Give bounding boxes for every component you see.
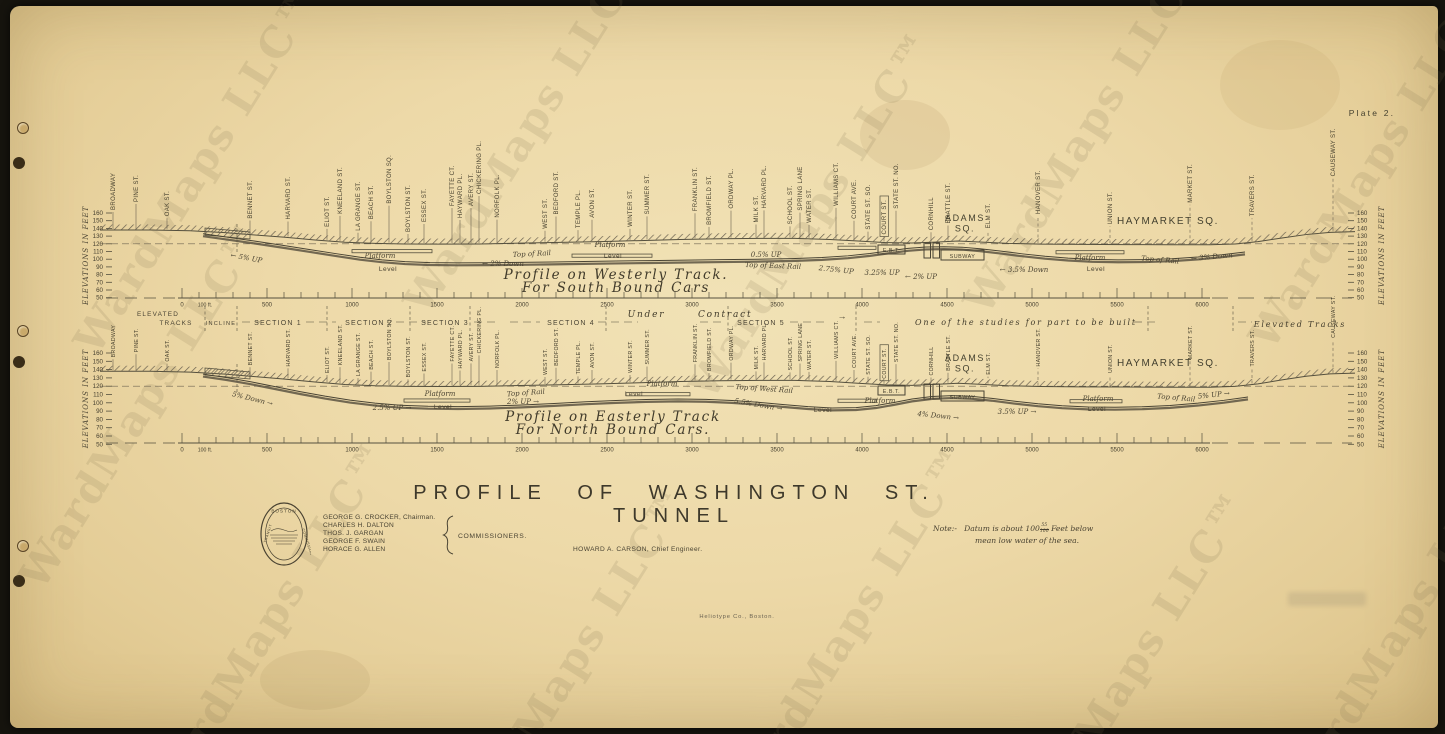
elev-tick-label: 110 [93, 392, 103, 399]
street-label: NORFOLK PL. [495, 330, 501, 368]
street-label: ESSEX ST. [422, 342, 428, 371]
elev-axis-label: ELEVATIONS IN FEET [82, 349, 90, 450]
profile-annotation: Top of Rail [1141, 254, 1180, 265]
elev-axis-label: ELEVATIONS IN FEET [1378, 349, 1386, 450]
structure-box-label: E.B.T. [883, 389, 900, 395]
elev-tick-label: 90 [1357, 264, 1364, 271]
street-label: CHICKERING PL. [477, 141, 483, 194]
elev-tick-label: 160 [93, 210, 104, 217]
study-note: One of the studies for part to be built [915, 318, 1137, 327]
street-label: HARVARD PL. [762, 322, 768, 360]
profile-annotation: Platform [424, 390, 456, 398]
chief-engineer: HOWARD A. CARSON, Chief Engineer. [573, 546, 702, 553]
elev-tick-label: 130 [1357, 375, 1368, 382]
street-label: ELM ST. [986, 203, 992, 228]
street-label: ESSEX ST. [422, 189, 428, 223]
street-label: COURT ST. [882, 200, 888, 235]
street-label: LA GRANGE ST. [356, 181, 362, 231]
street-label: CHICKERING PL. [477, 307, 483, 354]
elev-tick-label: 50 [1357, 295, 1364, 302]
street-label: BOYLSTON SQ. [387, 155, 393, 204]
ruler-number: 2000 [515, 448, 529, 454]
section-label: SECTION 5 [737, 320, 785, 327]
elev-tick-label: 60 [1357, 287, 1364, 294]
street-label: COURT ST. [882, 348, 888, 378]
elev-tick-label: 100 [93, 256, 104, 263]
square-label: HAYMARKET SQ. [1117, 358, 1219, 369]
ruler-number: 3000 [685, 303, 699, 309]
commissioner-name: THOS. J. GARGAN [323, 530, 458, 538]
profile-annotation: 2% UP → [506, 398, 539, 406]
elev-tick-label: 150 [93, 358, 104, 365]
street-label: CORNHILL [929, 346, 935, 375]
elev-tick-label: 160 [93, 350, 104, 357]
profile-caption: For North Bound Cars. [515, 422, 711, 438]
street-label: CORNHILL [929, 197, 935, 230]
profile-annotation: ← 3.5% Down [1000, 266, 1049, 274]
section-label: SECTION 4 [547, 320, 595, 327]
commissioner-name: GEORGE F. SWAIN [323, 538, 458, 546]
street-label: BENNET ST. [248, 332, 254, 365]
profile-annotation: Top of West Rail [735, 383, 793, 395]
profile-annotation: ← 3% Down [1191, 251, 1234, 263]
street-label: WATER ST. [807, 188, 813, 222]
profile-annotation: Top of Rail [507, 388, 546, 399]
street-label: FAYETTE CT. [450, 165, 456, 206]
profile-annotation: Top of Rail [513, 249, 552, 259]
profile-annotation: ← 5% UP [230, 251, 263, 264]
street-label: STATE ST. SO. [866, 335, 872, 375]
profile-annotation: Top of Rail [1157, 392, 1196, 403]
ruler-number: 5000 [1025, 448, 1039, 454]
street-label: SCHOOL ST. [788, 185, 794, 224]
ruler-number: 500 [262, 303, 273, 309]
street-label: OAK ST. [165, 191, 171, 216]
elevated-tracks-right: Elevated Tracks [1253, 320, 1346, 329]
note-body: Feet below [1051, 524, 1093, 533]
elev-tick-label: 120 [93, 383, 104, 390]
street-label: ORDWAY PL. [729, 325, 735, 360]
street-label: STATE ST. NO. [894, 322, 900, 362]
ruler-number: 6000 [1195, 448, 1209, 454]
elev-tick-label: 50 [96, 295, 103, 302]
profile-annotation: ← 2% UP [905, 273, 937, 281]
ruler-number: 0 [180, 303, 184, 309]
elev-tick-label: 140 [93, 367, 104, 374]
street-label: MILK ST. [754, 346, 760, 370]
profile-annotation: Top of East Rail [745, 261, 801, 271]
commissioner-name: HORACE G. ALLEN [323, 546, 458, 554]
street-label: SPRING LANE [798, 323, 804, 362]
elev-tick-label: 80 [1357, 416, 1364, 423]
ruler-number: 4500 [940, 448, 954, 454]
street-label: AVON ST. [590, 342, 596, 368]
street-label: COURT AVE. [852, 334, 858, 368]
ruler-number: 3500 [770, 303, 784, 309]
elev-tick-label: 160 [1357, 350, 1368, 357]
ruler-number: 5500 [1110, 303, 1124, 309]
profile-annotation: Level [604, 253, 622, 260]
street-label: BEDFORD ST. [554, 171, 560, 215]
street-label: CAUSEWAY ST. [1331, 128, 1337, 176]
elev-tick-label: 150 [93, 218, 104, 225]
seal-text-transit: TRANSIT [263, 523, 273, 543]
elev-tick-label: 90 [96, 408, 103, 415]
elev-tick-label: 150 [1357, 358, 1368, 365]
elev-tick-label: 110 [1357, 249, 1367, 256]
street-label: STATE ST. NO. [894, 163, 900, 209]
street-label: TEMPLE PL. [576, 190, 582, 228]
elev-tick-label: 90 [96, 264, 103, 271]
elev-tick-label: 120 [1357, 383, 1368, 390]
ruler-number: 4000 [855, 448, 869, 454]
ruler-number: 3500 [770, 448, 784, 454]
section-label: SECTION 1 [254, 320, 302, 327]
street-label: ELIOT ST. [325, 346, 331, 373]
street-label: ORDWAY PL. [729, 168, 735, 208]
street-label: HANOVER ST. [1036, 328, 1042, 366]
profile-annotation: 5% Down → [231, 390, 274, 408]
street-label: UNION ST. [1108, 192, 1114, 225]
street-label: MILK ST. [754, 195, 760, 222]
faded-stamp [1288, 592, 1366, 606]
elev-tick-label: 130 [93, 233, 104, 240]
profile-annotation: Level [814, 407, 832, 414]
street-label: AVON ST. [590, 188, 596, 218]
street-label: BENNET ST. [248, 180, 254, 218]
note-line2: mean low water of the sea. [975, 535, 1163, 547]
street-label: PINE ST. [134, 328, 140, 352]
street-label: STATE ST. SO. [866, 184, 872, 229]
elev-tick-label: 70 [1357, 279, 1364, 286]
square-label: ADAMS [945, 213, 985, 223]
street-label: SUMMER ST. [645, 329, 651, 365]
square-label: SQ. [955, 224, 975, 234]
elev-tick-label: 140 [1357, 367, 1368, 374]
elev-tick-label: 100 [1357, 400, 1368, 407]
ruler-number: 100 ft. [198, 448, 212, 454]
street-label: COURT AVE. [852, 180, 858, 219]
platform-outline [838, 246, 876, 249]
street-label: PINE ST. [134, 175, 140, 202]
ruler-number: 1500 [430, 303, 444, 309]
elev-tick-label: 100 [93, 400, 104, 407]
street-label: HARVARD ST. [286, 329, 292, 367]
elev-tick-label: 80 [96, 272, 103, 279]
section-label: SECTION 2 [345, 320, 393, 327]
commissioners-label: COMMISSIONERS. [458, 533, 527, 540]
elev-tick-label: 70 [96, 425, 103, 432]
profile-drawing: E.B.T.SUBWAYBROADWAYPINE ST.OAK ST.BENNE… [0, 0, 1445, 734]
elev-axis-label: ELEVATIONS IN FEET [82, 205, 90, 306]
street-label: UNION ST. [1108, 344, 1114, 373]
ruler-number: 6000 [1195, 303, 1209, 309]
profile-annotation: Level [1087, 266, 1105, 273]
platform-outline [404, 399, 470, 402]
profile-annotation: Level [1088, 406, 1106, 413]
structure-box-label: SUBWAY [950, 254, 976, 260]
street-label: TEMPLE PL. [576, 341, 582, 374]
elev-tick-label: 60 [96, 433, 103, 440]
street-label: HARVARD PL. [762, 165, 768, 208]
street-label: KNEELAND ST. [338, 167, 344, 214]
street-label: SPRING LANE [798, 166, 804, 210]
profile-annotation: 2.75% UP [817, 264, 854, 276]
ruler-number: 1500 [430, 448, 444, 454]
street-label: BROMFIELD ST. [707, 175, 713, 225]
profile-annotation: 5% UP → [1197, 389, 1230, 400]
profile-annotation: Platform [864, 397, 896, 405]
street-label: ELIOT ST. [325, 196, 331, 227]
incline-label: INCLINE [206, 321, 236, 327]
elev-axis-label: ELEVATIONS IN FEET [1378, 205, 1386, 306]
street-label: FAYETTE CT. [450, 326, 456, 362]
street-label: ELM ST. [986, 353, 992, 375]
street-label: BOYLSTON ST. [406, 185, 412, 232]
elev-tick-label: 100 [1357, 256, 1368, 263]
structure-box-label: SUBWAY [950, 395, 976, 401]
commissioner-name: GEORGE G. CROCKER, Chairman. [323, 514, 458, 522]
street-label: CAUSEWAY ST. [1331, 296, 1337, 338]
street-label: LA GRANGE ST. [356, 333, 362, 376]
street-label: KNEELAND ST. [338, 324, 344, 365]
street-label: WEST ST. [543, 348, 549, 375]
street-label: WINTER ST. [628, 340, 634, 373]
elev-tick-label: 110 [93, 249, 103, 256]
elev-tick-label: 110 [1357, 392, 1367, 399]
profile-annotation: Platform [646, 380, 678, 388]
street-label: WEST ST. [543, 198, 549, 228]
elev-tick-label: 120 [1357, 241, 1368, 248]
elevated-tracks-left: ELEVATED [137, 311, 179, 318]
structure-box-label: E.B.T. [883, 248, 900, 254]
street-label: NORFOLK PL. [495, 174, 501, 218]
ruler-number: 1000 [345, 448, 359, 454]
elev-tick-label: 80 [1357, 272, 1364, 279]
street-label: BROMFIELD ST. [707, 327, 713, 371]
btc-seal: BOSTON TRANSIT COMMISSION [257, 499, 311, 569]
plate-label: Plate 2. [1322, 108, 1422, 118]
street-label: BROADWAY [111, 173, 117, 210]
street-label: HAYWARD PL. [458, 329, 464, 368]
note-body: Datum is about 100 [964, 524, 1040, 533]
profile-annotation: Platform [1082, 395, 1114, 403]
street-label: SUMMER ST. [645, 174, 651, 215]
section-label: SECTION 3 [421, 320, 469, 327]
elevated-tracks-left: TRACKS [159, 320, 192, 327]
street-label: TRAVERS ST. [1250, 330, 1256, 367]
elev-tick-label: 70 [1357, 425, 1364, 432]
seal-scene [271, 529, 297, 532]
ruler-number: 5500 [1110, 448, 1124, 454]
elev-tick-label: 60 [1357, 433, 1364, 440]
profile-annotation: Platform [1074, 254, 1106, 262]
square-label: ADAMS [945, 353, 985, 363]
street-label: AVERY ST. [469, 332, 475, 361]
street-label: FRANKLIN ST. [693, 167, 699, 211]
profile-annotation: 4% Down → [916, 410, 959, 422]
street-label: WINTER ST. [628, 189, 634, 227]
street-label: BEACH ST. [369, 185, 375, 219]
profile-annotation: Platform [364, 252, 396, 260]
elev-tick-label: 50 [96, 441, 103, 448]
street-label: HARVARD ST. [286, 177, 292, 220]
elev-tick-label: 70 [96, 279, 103, 286]
street-label: BEACH ST. [369, 340, 375, 370]
street-label: WATER ST. [807, 340, 813, 370]
profile-annotation: Level [434, 404, 452, 411]
elev-tick-label: 60 [96, 287, 103, 294]
elev-tick-label: 80 [96, 416, 103, 423]
street-label: WILLIAMS CT. [834, 162, 840, 206]
street-label: BOYLSTON ST. [406, 336, 412, 377]
direction-arrow: → [838, 311, 847, 321]
elev-tick-label: 50 [1357, 441, 1364, 448]
profile-caption: For South Bound Cars [521, 280, 710, 296]
scanned-map-sheet: WardMaps LLC™WardMaps LLC™WardMaps LLC™W… [0, 0, 1445, 734]
under-contract-label: Under Contract [628, 310, 753, 320]
elev-tick-label: 130 [1357, 233, 1368, 240]
elev-tick-label: 150 [1357, 218, 1368, 225]
street-label: HAYWARD PL. [458, 173, 464, 218]
elev-tick-label: 120 [93, 241, 104, 248]
ruler-number: 1000 [345, 303, 359, 309]
ruler-number: 2000 [515, 303, 529, 309]
profile-annotation: 3.5% UP → [998, 408, 1037, 416]
elev-tick-label: 130 [93, 375, 104, 382]
profile-annotation: 0.5% UP [751, 251, 782, 259]
profile-annotation: 3.25% UP [864, 269, 899, 277]
printer-credit: Heliotype Co., Boston. [637, 614, 837, 620]
profile-annotation: 5.5% Down → [734, 397, 783, 413]
ruler-number: 500 [262, 448, 273, 454]
seal-text-boston: BOSTON [271, 509, 296, 514]
shaft-box [933, 243, 940, 258]
street-label: MARKET ST. [1188, 325, 1194, 359]
profile-annotation: Level [379, 266, 397, 273]
street-label: BROADWAY [111, 325, 117, 358]
profile-annotation: Level [625, 391, 643, 398]
street-label: TRAVERS ST. [1250, 174, 1256, 216]
elev-tick-label: 160 [1357, 210, 1368, 217]
square-label: SQ. [955, 364, 975, 374]
square-label: HAYMARKET SQ. [1117, 216, 1219, 227]
commissioner-name: CHARLES H. DALTON [323, 522, 458, 530]
note-fraction: 55100 [1040, 524, 1049, 534]
elev-tick-label: 140 [1357, 225, 1368, 232]
street-label: SCHOOL ST. [788, 336, 794, 370]
street-label: BEDFORD ST. [554, 328, 560, 366]
ruler-number: 0 [180, 448, 184, 454]
note-prefix: Note:- [933, 524, 957, 533]
elev-tick-label: 140 [93, 225, 104, 232]
commissioners-list: GEORGE G. CROCKER, Chairman. CHARLES H. … [323, 514, 458, 554]
elev-tick-label: 90 [1357, 408, 1364, 415]
ruler-number: 3000 [685, 448, 699, 454]
ruler-number: 4000 [855, 303, 869, 309]
street-label: WILLIAMS CT. [834, 321, 840, 359]
street-label: AVERY ST. [469, 173, 475, 206]
ruler-number: 5000 [1025, 303, 1039, 309]
datum-note: Note:- Datum is about 10055100 Feet belo… [933, 523, 1163, 547]
street-label: OAK ST. [165, 339, 171, 361]
ruler-number: 2500 [600, 303, 614, 309]
street-label: MARKET ST. [1188, 164, 1194, 203]
ruler-number: 2500 [600, 448, 614, 454]
ruler-number: 4500 [940, 303, 954, 309]
street-label: HANOVER ST. [1036, 170, 1042, 214]
street-label: FRANKLIN ST. [693, 323, 699, 362]
profile-annotation: 2.5% UP → [372, 404, 412, 412]
profile-annotation: Platform [594, 241, 626, 249]
